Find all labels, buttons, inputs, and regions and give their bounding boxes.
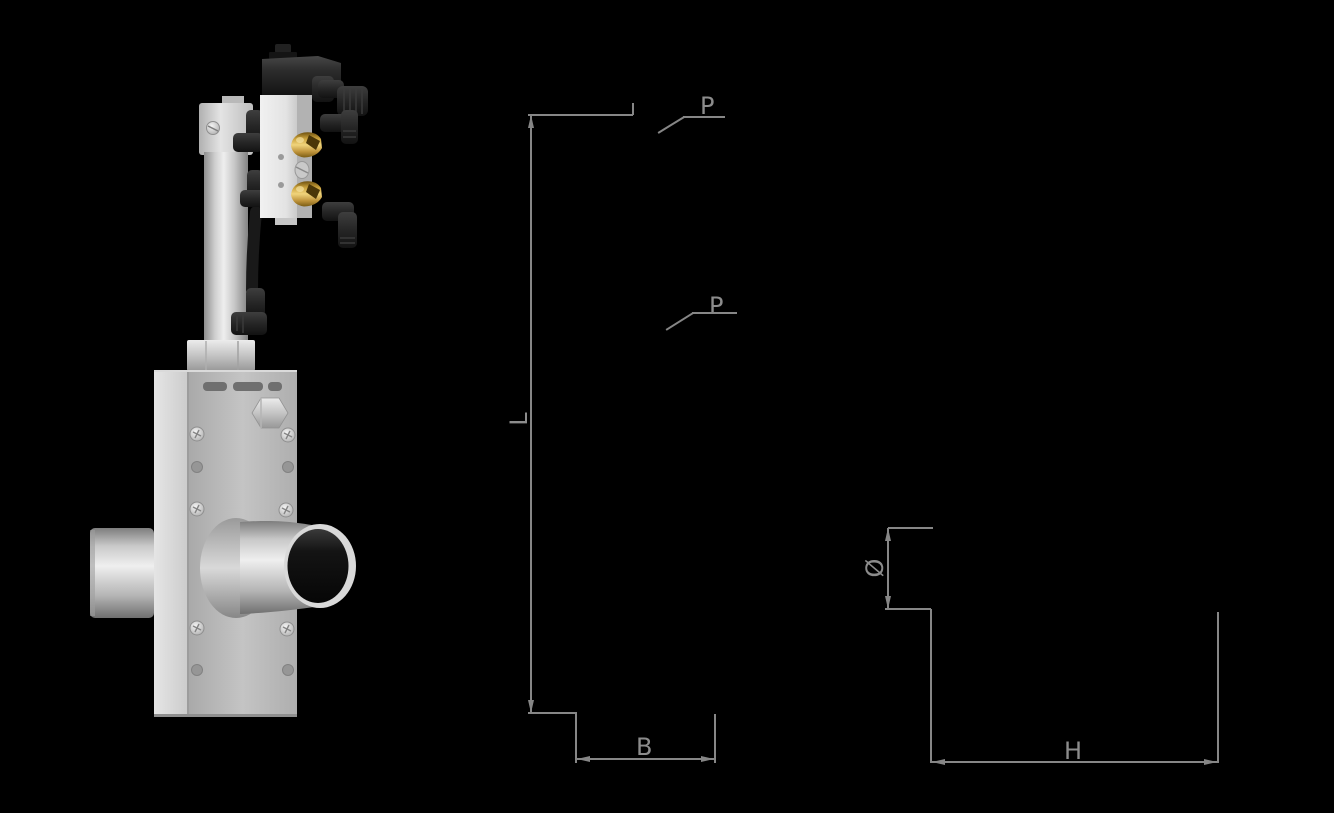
p-top-leader-diagonal <box>658 116 685 134</box>
dia-extension-line-bottom <box>885 608 931 610</box>
hex-adapter-nut <box>187 340 255 371</box>
l-extension-line-bottom <box>528 712 577 714</box>
dim-label-diameter: Ø <box>862 554 888 582</box>
l-extension-tick <box>632 103 634 115</box>
dim-label-length: L <box>506 405 532 433</box>
dim-label-height: H <box>1064 738 1082 764</box>
l-extension-line-top <box>528 114 633 116</box>
p-bottom-leader-horizontal <box>692 312 737 314</box>
vent-slots <box>203 382 282 391</box>
h-arrow-right-icon <box>1204 759 1217 765</box>
dim-label-width: B <box>636 734 652 760</box>
p-bottom-leader-diagonal <box>666 312 694 330</box>
p-top-leader-horizontal <box>683 116 725 118</box>
valve-render <box>80 40 370 730</box>
b-arrow-right-icon <box>701 756 714 762</box>
b-arrow-left-icon <box>577 756 590 762</box>
h-arrow-left-icon <box>932 759 945 765</box>
elbow-fitting-mid-right <box>320 110 358 144</box>
b-extension-line-right <box>714 714 716 763</box>
dim-label-port-bottom: P <box>709 293 723 319</box>
l-arrow-up-icon <box>528 115 534 128</box>
through-tube <box>90 518 356 618</box>
dia-extension-line-top <box>888 527 933 529</box>
dia-arrow-up-icon <box>885 528 891 541</box>
elbow-fitting-bottom-right <box>322 202 357 248</box>
drawing-canvas: L P P B Ø H <box>0 0 1334 813</box>
h-extension-line-left <box>930 609 932 763</box>
h-extension-line-right <box>1217 612 1219 763</box>
